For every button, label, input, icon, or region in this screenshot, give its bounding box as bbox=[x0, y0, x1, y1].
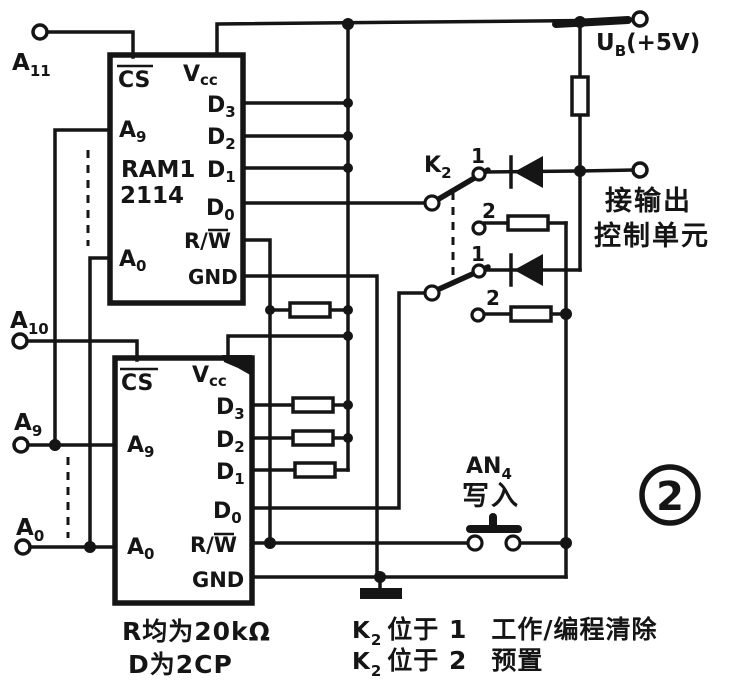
terminal-ub[interactable] bbox=[633, 12, 647, 26]
pin-label-a0: A0 bbox=[127, 535, 154, 563]
chip-part-number: 2114 bbox=[120, 183, 184, 209]
button-caption: 写入 bbox=[462, 481, 520, 512]
wire-rw-bus bbox=[243, 240, 270, 543]
resistor-d2-pullup bbox=[293, 431, 333, 445]
junction-dot bbox=[560, 537, 572, 549]
footnotes: R均为20kΩ D为2CP K2位于 1工作/编程清除 K2位于 2预置 bbox=[122, 615, 658, 680]
pin-label-gnd: GND bbox=[188, 265, 238, 289]
diode-triangle bbox=[514, 254, 543, 286]
note-k2-position1: K2位于 1工作/编程清除 bbox=[352, 615, 658, 649]
switch-pos2-label-lower: 2 bbox=[486, 286, 500, 310]
terminal-a9-label: A9 bbox=[14, 410, 42, 440]
button-an4[interactable]: AN4 写入 bbox=[462, 454, 520, 550]
junction-dot bbox=[343, 433, 353, 443]
diode-upper bbox=[511, 156, 543, 188]
terminal-a11[interactable] bbox=[33, 25, 47, 39]
note-diode-type: D为2CP bbox=[128, 650, 233, 679]
pin-label-d2: D2 bbox=[207, 125, 236, 153]
wire-a0-riser bbox=[90, 258, 110, 547]
chip-title: RAM1 bbox=[121, 157, 195, 183]
terminal-a10[interactable] bbox=[13, 334, 27, 348]
output-control-label-line1: 接输出 bbox=[605, 185, 692, 217]
switch-pos1-label-lower: 1 bbox=[471, 242, 485, 266]
junction-dot bbox=[343, 131, 353, 141]
terminal-output-control[interactable] bbox=[633, 163, 647, 177]
pin-label-d2: D2 bbox=[216, 428, 245, 456]
ram-circuit-schematic: CS Vcc A9 RAM1 2114 A0 D3 D2 D1 D0 R/W G… bbox=[0, 0, 747, 690]
pin-label-vcc: Vcc bbox=[192, 363, 227, 390]
junction-dot bbox=[343, 400, 353, 410]
pin-label-gnd: GND bbox=[192, 568, 244, 592]
pin-label-d1: D1 bbox=[207, 158, 236, 186]
wire-node-to-terminal bbox=[580, 170, 633, 171]
pin-label-vcc: Vcc bbox=[183, 62, 218, 89]
switch-contact-1-upper bbox=[473, 168, 485, 180]
terminal-a11-label: A11 bbox=[12, 50, 51, 80]
figure-badge-number: 2 bbox=[656, 474, 684, 520]
pin-label-d3: D3 bbox=[216, 395, 245, 423]
pin-label-d3: D3 bbox=[207, 93, 236, 121]
diode-triangle bbox=[514, 156, 543, 188]
pin-label-cs: CS bbox=[121, 371, 153, 396]
note-k2-position2: K2位于 2预置 bbox=[352, 646, 543, 680]
switch-common-lower bbox=[425, 286, 439, 300]
junction-dot bbox=[84, 541, 96, 553]
figure-badge: 2 bbox=[642, 467, 698, 523]
wire-c2-d0 bbox=[252, 293, 425, 508]
switch-pos1-label-upper: 1 bbox=[471, 144, 485, 168]
pin-label-rw: R/W bbox=[184, 229, 231, 253]
pin-label-cs: CS bbox=[118, 68, 150, 93]
wires bbox=[27, 20, 633, 577]
pin-label-rw: R/W bbox=[190, 533, 237, 557]
junction-dot bbox=[560, 308, 572, 320]
terminal-a9[interactable] bbox=[14, 438, 28, 452]
chip-ram1: CS Vcc A9 RAM1 2114 A0 D3 D2 D1 D0 R/W G… bbox=[110, 55, 243, 303]
diode-lower bbox=[511, 254, 543, 286]
junction-dot bbox=[343, 305, 353, 315]
resistor-preset-upper bbox=[508, 216, 548, 230]
switch-pos2-label-upper: 2 bbox=[482, 199, 496, 223]
button-terminal-left bbox=[468, 536, 482, 550]
junction-dot bbox=[342, 18, 354, 30]
wire-a9-riser bbox=[55, 130, 110, 445]
junction-dot bbox=[343, 331, 353, 341]
junction-dot bbox=[264, 537, 276, 549]
resistor-d3-pullup bbox=[293, 398, 333, 412]
junction-dot bbox=[343, 98, 353, 108]
pin-label-a9: A9 bbox=[119, 118, 146, 146]
pin-label-d1: D1 bbox=[216, 460, 245, 488]
resistor-preset-lower bbox=[511, 307, 551, 321]
note-resistor-value: R均为20kΩ bbox=[122, 617, 271, 646]
schematic-page: CS Vcc A9 RAM1 2114 A0 D3 D2 D1 D0 R/W G… bbox=[0, 0, 747, 690]
terminal-a10-label: A10 bbox=[10, 308, 49, 338]
button-terminal-right bbox=[506, 536, 520, 550]
terminal-ub-label: UB(+5V) bbox=[596, 30, 700, 60]
chip-ram2: CS Vcc A9 A0 D3 D2 D1 D0 R/W GND bbox=[115, 355, 252, 603]
resistor-rw-pullup bbox=[290, 303, 330, 317]
switch-contact-1-lower bbox=[473, 265, 485, 277]
switch-contact-2-upper bbox=[473, 222, 485, 234]
terminal-a0-label: A0 bbox=[16, 515, 44, 545]
pin-label-d0: D0 bbox=[213, 499, 242, 527]
button-label: AN4 bbox=[466, 454, 512, 483]
terminal-a0[interactable] bbox=[16, 540, 30, 554]
switch-common-upper bbox=[425, 196, 439, 210]
output-control-label-line2: 控制单元 bbox=[594, 221, 710, 252]
switch-contact-2-lower bbox=[472, 309, 484, 321]
wire-rail-heavy bbox=[556, 20, 628, 24]
junction-dot bbox=[574, 16, 586, 28]
ground-symbol bbox=[360, 577, 402, 599]
wire-c2-vcc bbox=[228, 336, 348, 358]
pin-label-a0: A0 bbox=[119, 247, 146, 275]
ground-bar bbox=[360, 588, 402, 599]
pin-label-d0: D0 bbox=[206, 196, 235, 224]
wire-gnd-bus bbox=[243, 276, 377, 577]
pin-label-a9: A9 bbox=[127, 433, 154, 461]
junction-dot bbox=[265, 305, 275, 315]
switch-label: K2 bbox=[424, 153, 452, 182]
resistor-ub bbox=[572, 77, 588, 115]
junction-dot bbox=[574, 165, 586, 177]
switch-k2[interactable]: K2 1 2 1 2 bbox=[424, 144, 500, 321]
junction-dot bbox=[343, 163, 353, 173]
resistor-d1-pullup bbox=[295, 463, 335, 477]
junction-dot bbox=[49, 439, 61, 451]
